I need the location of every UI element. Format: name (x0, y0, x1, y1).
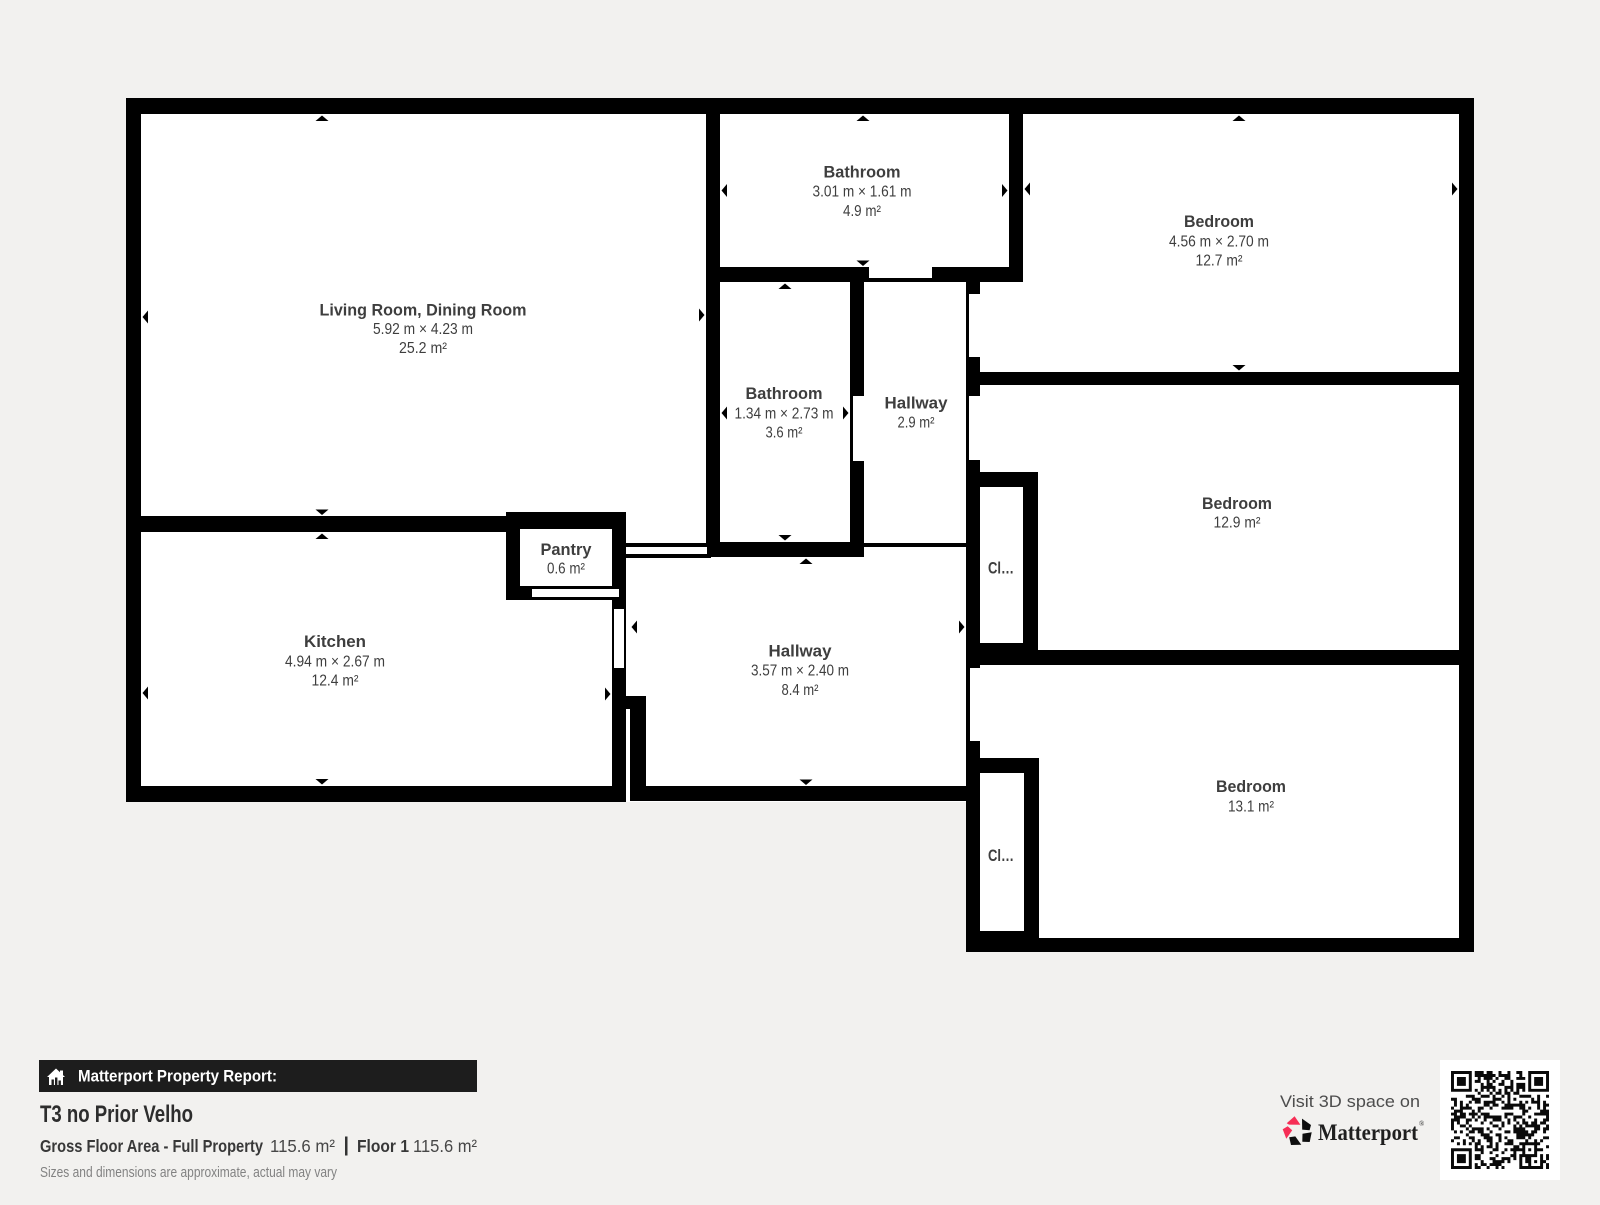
svg-text:Living Room, Dining Room: Living Room, Dining Room (320, 301, 527, 320)
svg-text:Matterport Property Report:: Matterport Property Report: (78, 1068, 277, 1086)
svg-text:Pantry: Pantry (541, 540, 593, 559)
svg-text:Cl…: Cl… (988, 846, 1014, 865)
svg-text:®: ® (1419, 1120, 1425, 1128)
svg-text:4.9 m²: 4.9 m² (843, 203, 881, 220)
svg-text:Hallway: Hallway (885, 394, 949, 413)
svg-text:115.6 m²: 115.6 m² (270, 1136, 335, 1156)
svg-text:8.4 m²: 8.4 m² (782, 682, 819, 699)
svg-text:3.6 m²: 3.6 m² (766, 425, 803, 442)
svg-text:4.94 m × 2.67 m: 4.94 m × 2.67 m (285, 654, 385, 671)
svg-text:Cl…: Cl… (988, 559, 1014, 578)
svg-text:Gross Floor Area - Full Proper: Gross Floor Area - Full Property (40, 1136, 263, 1156)
svg-text:12.9 m²: 12.9 m² (1214, 515, 1261, 532)
svg-text:Visit 3D space on: Visit 3D space on (1280, 1093, 1420, 1111)
svg-text:Kitchen: Kitchen (304, 632, 366, 651)
svg-text:Bedroom: Bedroom (1216, 777, 1286, 796)
svg-text:12.7 m²: 12.7 m² (1196, 253, 1243, 270)
svg-text:1.34 m × 2.73 m: 1.34 m × 2.73 m (735, 406, 834, 423)
svg-text:4.56 m × 2.70 m: 4.56 m × 2.70 m (1169, 234, 1269, 251)
svg-text:Bathroom: Bathroom (746, 384, 823, 403)
svg-text:Bathroom: Bathroom (824, 163, 901, 182)
svg-text:3.01 m × 1.61 m: 3.01 m × 1.61 m (813, 184, 912, 201)
svg-text:12.4 m²: 12.4 m² (312, 673, 359, 690)
svg-text:3.57 m × 2.40 m: 3.57 m × 2.40 m (751, 663, 849, 680)
svg-text:Bedroom: Bedroom (1202, 494, 1272, 513)
svg-text:5.92 m × 4.23 m: 5.92 m × 4.23 m (373, 321, 473, 338)
svg-text:Floor 1: Floor 1 (357, 1136, 409, 1156)
svg-text:Bedroom: Bedroom (1184, 212, 1254, 231)
svg-text:2.9 m²: 2.9 m² (898, 415, 935, 432)
svg-text:T3 no Prior Velho: T3 no Prior Velho (40, 1101, 193, 1128)
svg-text:Sizes and dimensions are appro: Sizes and dimensions are approximate, ac… (40, 1164, 337, 1181)
svg-text:Matterport: Matterport (1318, 1120, 1418, 1145)
svg-text:13.1 m²: 13.1 m² (1228, 799, 1274, 816)
svg-text:25.2 m²: 25.2 m² (399, 340, 447, 357)
svg-text:0.6 m²: 0.6 m² (547, 561, 585, 578)
svg-text:Hallway: Hallway (769, 642, 833, 661)
svg-text:115.6 m²: 115.6 m² (413, 1136, 477, 1156)
